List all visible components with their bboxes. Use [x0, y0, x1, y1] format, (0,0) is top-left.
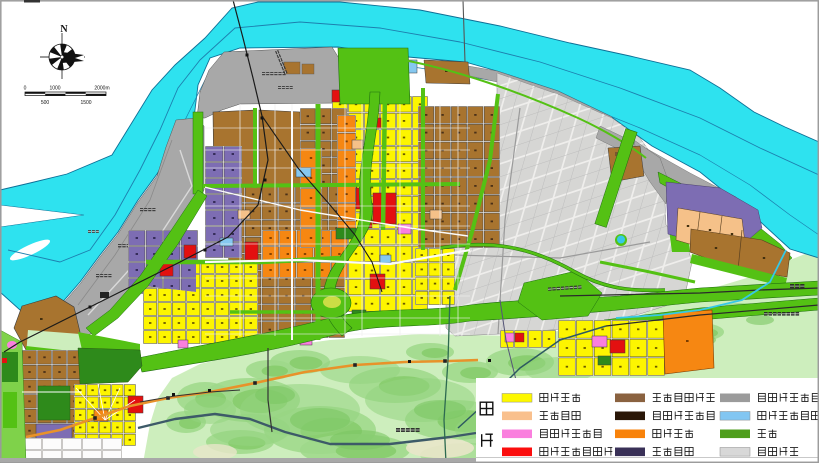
svg-text:1500: 1500 [80, 100, 91, 106]
svg-text:500: 500 [41, 100, 50, 106]
svg-text:2000m: 2000m [94, 86, 109, 92]
svg-text:0: 0 [24, 86, 27, 92]
svg-text:1000: 1000 [49, 86, 60, 92]
